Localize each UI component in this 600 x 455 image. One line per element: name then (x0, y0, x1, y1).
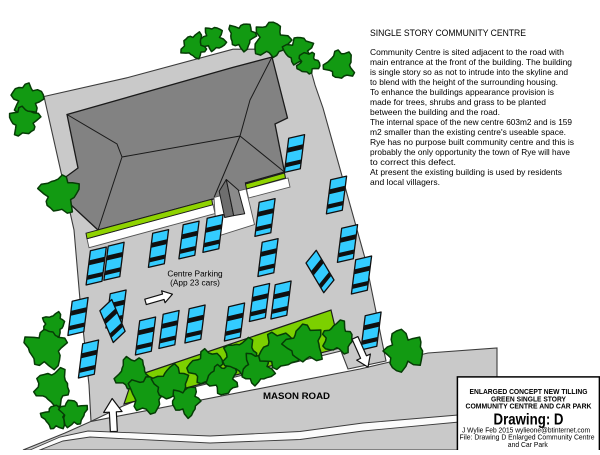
svg-text:To enhance the buildings appea: To enhance the buildings appearance prov… (370, 87, 554, 97)
svg-text:main entrance at the front of: main entrance at the front of the buildi… (370, 57, 572, 67)
svg-text:The internal space of the new: The internal space of the new centre 603… (370, 117, 572, 127)
svg-text:(App 23 cars): (App 23 cars) (170, 278, 220, 288)
svg-text:SINGLE STORY COMMUNITY CENTRE: SINGLE STORY COMMUNITY CENTRE (370, 28, 526, 38)
svg-text:is single story so as not to i: is single story so as not to intrude int… (370, 67, 568, 77)
svg-text:MASON ROAD: MASON ROAD (263, 391, 330, 402)
svg-text:to blend with the height of th: to blend with the height of the surround… (370, 77, 558, 87)
svg-text:made for trees, shrubs and gra: made for trees, shrubs and grass to be p… (370, 97, 546, 107)
svg-text:and local villagers.: and local villagers. (370, 177, 440, 187)
svg-text:COMMUNITY CENTRE AND CAR PARK: COMMUNITY CENTRE AND CAR PARK (466, 402, 592, 411)
svg-text:Community Centre is sited adja: Community Centre is sited adjacent to th… (370, 47, 564, 57)
svg-text:and Car Park: and Car Park (508, 440, 548, 449)
svg-text:to correct this defect.: to correct this defect. (370, 157, 456, 167)
svg-text:probably the only opportunity: probably the only opportunity the town o… (370, 147, 570, 157)
svg-text:between the building and the r: between the building and the road. (370, 107, 500, 117)
svg-text:Rye has no purpose built commu: Rye has no purpose built community centr… (370, 137, 574, 147)
svg-text:At present the existing buildi: At present the existing building is used… (370, 167, 562, 177)
svg-text:m2 smaller than the existing c: m2 smaller than the existing centre's us… (370, 127, 566, 137)
